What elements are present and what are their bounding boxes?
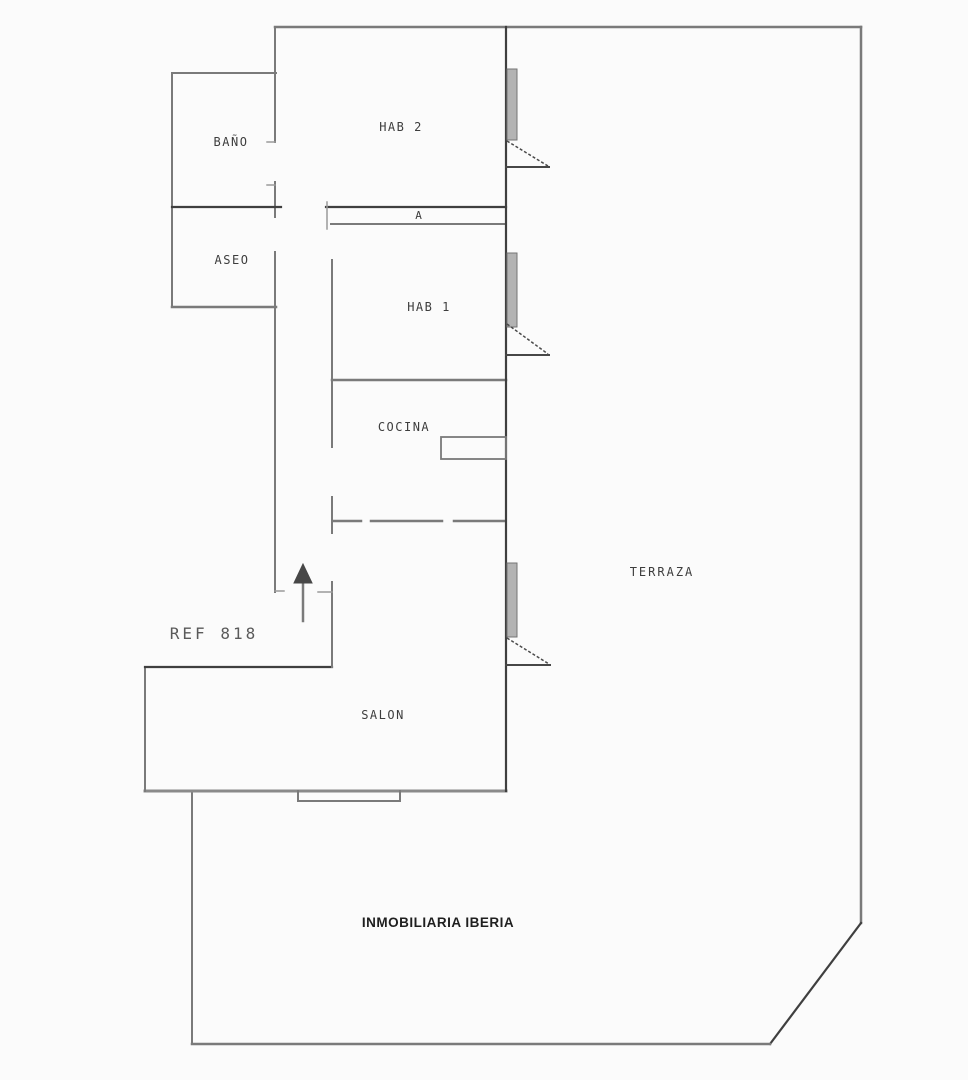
wardrobe-label: A [415, 209, 423, 222]
hallway-right-wall [318, 260, 332, 667]
floor-plan-svg: BAÑO ASEO HAB 2 A HAB 1 COCINA TERRAZA S… [0, 0, 968, 1080]
entrance-arrow-icon [294, 564, 312, 621]
bathroom-walls [172, 73, 281, 307]
agency-watermark: INMOBILIARIA IBERIA [362, 915, 514, 930]
floor-plan: BAÑO ASEO HAB 2 A HAB 1 COCINA TERRAZA S… [0, 0, 968, 1080]
chamfer-wall [770, 923, 861, 1044]
window-swing-symbol-hab1 [506, 253, 549, 355]
room-label-salon: SALON [361, 708, 405, 722]
hallway-left-wall [267, 27, 284, 592]
room-label-cocina: COCINA [378, 420, 430, 434]
reference-label: REF 818 [170, 624, 258, 643]
outer-walls [145, 27, 861, 1044]
room-label-bano: BAÑO [214, 134, 249, 149]
window-leaf [507, 69, 517, 140]
window-swing-symbol-hab2 [506, 69, 549, 167]
kitchen-counter [441, 437, 506, 459]
room-label-terraza: TERRAZA [630, 565, 695, 579]
window-swing-symbol-salon [506, 563, 550, 665]
room-label-hab2: HAB 2 [379, 120, 423, 134]
interior-walls [332, 27, 506, 791]
window-leaf [507, 563, 517, 637]
room-label-hab1: HAB 1 [407, 300, 451, 314]
window-leaf [507, 253, 517, 327]
room-label-aseo: ASEO [215, 253, 250, 267]
